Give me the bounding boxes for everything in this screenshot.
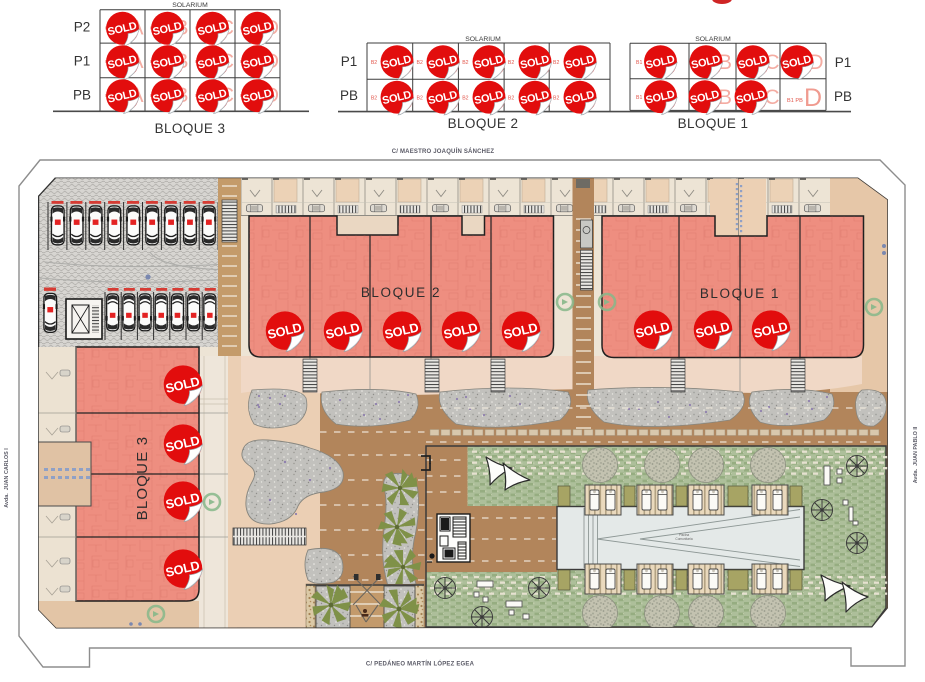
svg-text:B2: B2 [417,60,423,66]
svg-text:B2: B2 [508,96,514,102]
svg-text:BLOQUE 3: BLOQUE 3 [155,121,226,136]
svg-text:P1: P1 [74,53,91,68]
svg-text:SOLARIUM: SOLARIUM [465,36,501,43]
svg-text:B2: B2 [508,60,514,66]
svg-text:Avda. JUAN CARLOS I: Avda. JUAN CARLOS I [4,448,10,508]
svg-text:P2: P2 [74,19,91,34]
svg-text:B2: B2 [553,60,559,66]
svg-text:C/ PEDÁNEO MARTÍN LÓPEZ EGEA: C/ PEDÁNEO MARTÍN LÓPEZ EGEA [366,660,475,668]
svg-text:B2: B2 [462,60,468,66]
svg-text:BLOQUE 1: BLOQUE 1 [700,286,780,301]
svg-text:PB: PB [834,89,852,104]
svg-text:Comunitaria: Comunitaria [675,537,692,541]
svg-text:PB: PB [340,88,358,103]
svg-text:B2: B2 [371,96,377,102]
svg-text:B2: B2 [417,96,423,102]
svg-text:BLOQUE 3: BLOQUE 3 [134,436,151,521]
svg-text:B2: B2 [553,96,559,102]
svg-text:SOLARIUM: SOLARIUM [695,36,731,43]
svg-text:C/ MAESTRO JOAQUÍN SÁNCHEZ: C/ MAESTRO JOAQUÍN SÁNCHEZ [392,147,495,155]
svg-text:B2: B2 [371,60,377,66]
svg-text:Avda. JUAN PABLO II: Avda. JUAN PABLO II [913,426,919,483]
svg-text:B1 PB: B1 PB [787,98,803,104]
svg-text:PB: PB [73,88,91,103]
svg-text:B1: B1 [636,95,642,101]
svg-text:SOLARIUM: SOLARIUM [172,2,208,9]
svg-text:P1: P1 [341,54,358,69]
svg-text:D: D [804,84,822,112]
svg-text:P1: P1 [835,55,852,70]
svg-text:BLOQUE 2: BLOQUE 2 [361,285,441,300]
svg-text:BLOQUE 1: BLOQUE 1 [678,116,749,131]
svg-text:B2: B2 [462,96,468,102]
svg-text:B1: B1 [636,60,642,66]
svg-text:BLOQUE 2: BLOQUE 2 [448,116,519,131]
